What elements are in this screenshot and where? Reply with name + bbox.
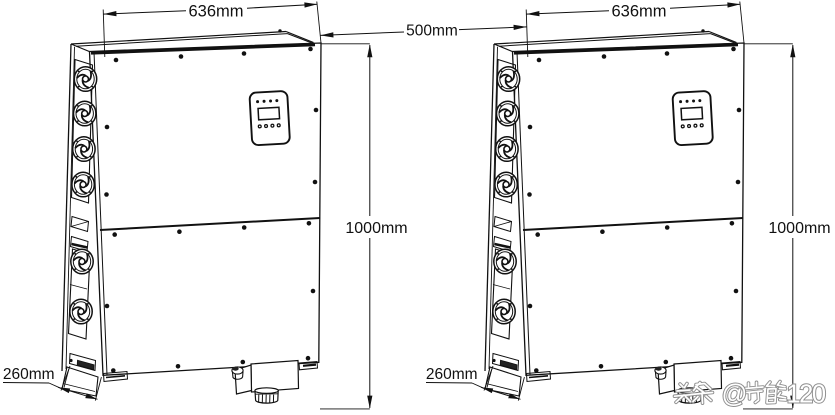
svg-text:@: @ <box>722 381 746 409</box>
svg-text:1000mm: 1000mm <box>345 220 407 237</box>
svg-text:636mm: 636mm <box>188 3 243 21</box>
svg-text:260mm: 260mm <box>3 366 55 383</box>
svg-text:500mm: 500mm <box>406 23 458 40</box>
svg-text:120: 120 <box>787 381 826 409</box>
